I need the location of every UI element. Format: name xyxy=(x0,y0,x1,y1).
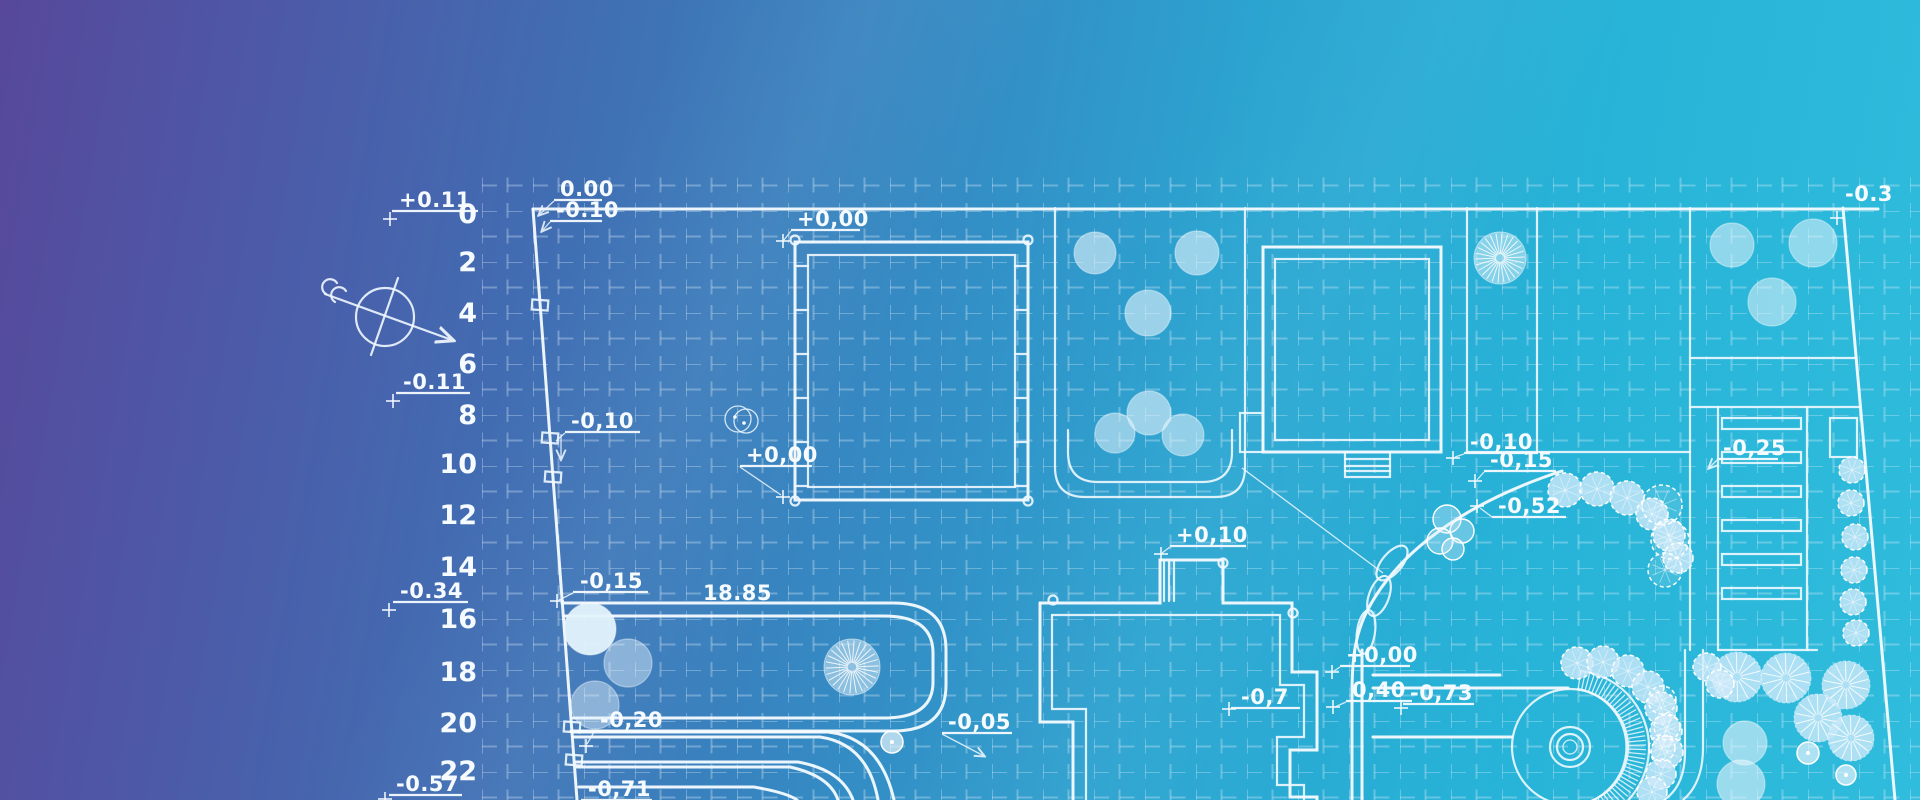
fluffy-tree-symbol xyxy=(1838,490,1864,516)
north-arrow-compass-icon xyxy=(322,278,452,355)
wfluffy-tree-symbol xyxy=(1642,485,1682,525)
svg-text:-0,71: -0,71 xyxy=(588,777,651,800)
sunburst-tree-symbol xyxy=(824,639,880,695)
solid-tree-symbol xyxy=(604,639,652,687)
fluffy-tree-symbol xyxy=(1839,457,1865,483)
svg-text:-0.34: -0.34 xyxy=(400,579,463,603)
fluffy-tree-symbol xyxy=(1842,524,1868,550)
svg-text:-0,73: -0,73 xyxy=(1410,681,1473,705)
solid-tree-symbol xyxy=(1723,721,1767,765)
svg-text:0,40: 0,40 xyxy=(1352,678,1406,702)
hero-background: { "scene": { "width": 1920, "height": 80… xyxy=(0,0,1920,800)
wfluffy-tree-symbol xyxy=(1648,553,1682,587)
svg-text:-0,15: -0,15 xyxy=(580,569,643,593)
solid-tree-symbol xyxy=(1125,290,1171,336)
dotted-tree-symbol xyxy=(1836,765,1856,785)
solid-tree-symbol xyxy=(1789,219,1837,267)
blueprint-site-plan: 0246810121416182022 +0.11-0.11-0.34-0.57… xyxy=(0,0,1920,800)
svg-text:+0,00: +0,00 xyxy=(797,207,869,231)
fluffy-tree-symbol xyxy=(1843,620,1869,646)
dotted-tree-symbol xyxy=(881,731,903,753)
ruler-number: 18 xyxy=(439,657,477,688)
hatch-line xyxy=(1629,749,1646,750)
svg-text:+0,00: +0,00 xyxy=(746,443,818,467)
ruler-number: 2 xyxy=(458,247,477,278)
svg-text:-0.10: -0.10 xyxy=(556,198,619,222)
dotted-tree-symbol xyxy=(1797,742,1819,764)
fan-tree-symbol xyxy=(1828,715,1874,761)
ruler-number: 12 xyxy=(439,500,477,531)
fluffy-tree-symbol xyxy=(1841,557,1867,583)
solid-tree-symbol xyxy=(1074,232,1116,274)
solid-tree-symbol xyxy=(1095,413,1135,453)
fluffy-tree-symbol xyxy=(1840,589,1866,615)
svg-text:+0.11: +0.11 xyxy=(399,188,471,212)
svg-text:-0,15: -0,15 xyxy=(1490,448,1553,472)
solid-tree-symbol xyxy=(1175,231,1219,275)
wfluffy-tree-symbol xyxy=(1648,686,1676,714)
elevation-label: -0.57 xyxy=(378,772,462,800)
wfluffy-tree-symbol xyxy=(1649,735,1675,761)
fluffy-tree-symbol xyxy=(1706,670,1734,698)
svg-text:-0.3: -0.3 xyxy=(1845,182,1893,206)
svg-text:-0,10: -0,10 xyxy=(571,409,634,433)
ruler-number: 16 xyxy=(439,604,477,635)
svg-text:-0.11: -0.11 xyxy=(403,370,466,394)
svg-text:+0,10: +0,10 xyxy=(1176,523,1248,547)
svg-text:-0,7: -0,7 xyxy=(1241,685,1289,709)
svg-text:-0,25: -0,25 xyxy=(1723,436,1786,460)
svg-text:-0,20: -0,20 xyxy=(600,708,663,732)
elevation-label: -0,71 xyxy=(581,777,652,800)
fluffy-tree-symbol xyxy=(1580,472,1614,506)
outline-tree-symbol xyxy=(1442,538,1464,560)
ruler-scale: 0246810121416182022 xyxy=(439,199,477,787)
solid-tree-symbol xyxy=(1710,223,1754,267)
fan-tree-symbol xyxy=(1761,653,1811,703)
svg-text:-0.57: -0.57 xyxy=(396,772,459,796)
ruler-number: 10 xyxy=(439,449,477,480)
solid-tree-symbol xyxy=(1748,278,1796,326)
ruler-number: 20 xyxy=(439,708,477,739)
svg-text:-0,52: -0,52 xyxy=(1498,494,1561,518)
svg-text:+0,00: +0,00 xyxy=(1346,643,1418,667)
solid-tree-symbol xyxy=(564,603,616,655)
ruler-number: 4 xyxy=(458,298,477,329)
sunburst-tree-symbol xyxy=(1474,232,1526,284)
svg-text:-0,05: -0,05 xyxy=(948,710,1011,734)
dimension-text: 18.85 xyxy=(703,581,772,605)
ruler-number: 8 xyxy=(458,400,477,431)
solid-tree-symbol xyxy=(1162,414,1204,456)
